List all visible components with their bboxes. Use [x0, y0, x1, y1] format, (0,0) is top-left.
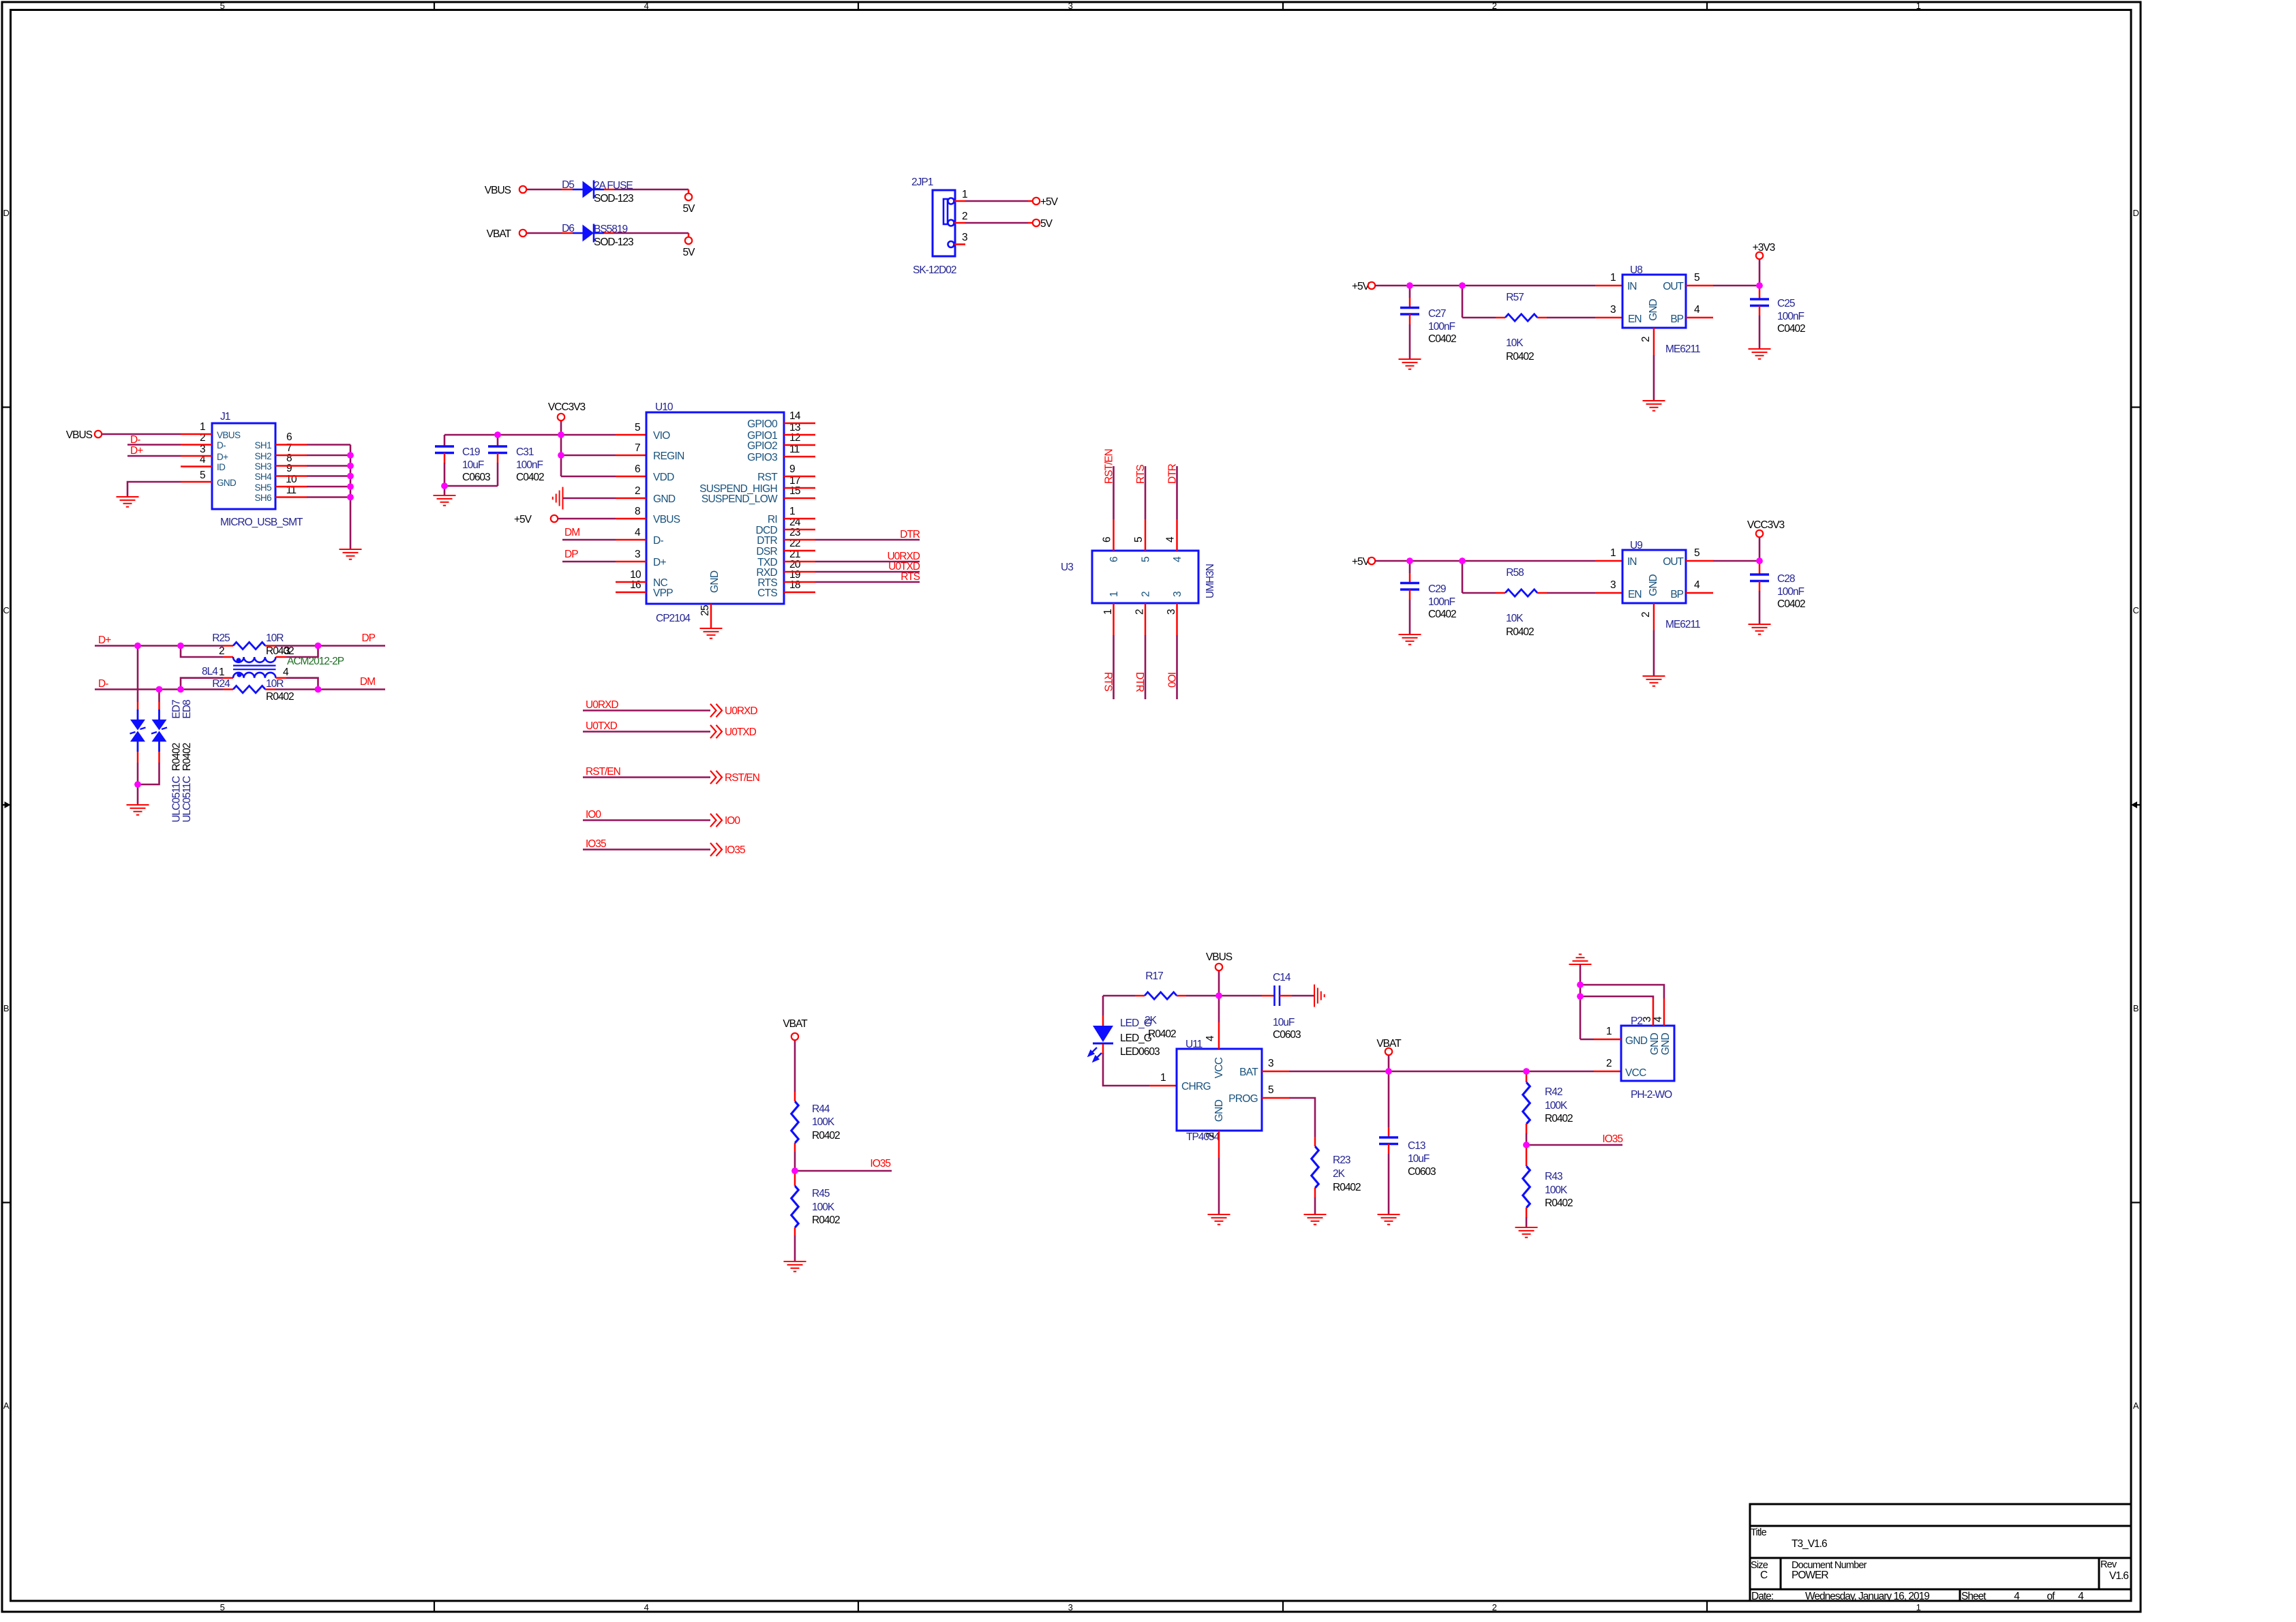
svg-text:1: 1: [1916, 1, 1921, 11]
svg-text:B: B: [3, 1003, 9, 1013]
svg-text:1: 1: [1160, 1072, 1166, 1084]
svg-text:PH-2-WO: PH-2-WO: [1631, 1089, 1672, 1101]
svg-text:1: 1: [1108, 592, 1120, 597]
svg-text:5: 5: [1694, 547, 1700, 559]
svg-text:5: 5: [200, 470, 205, 481]
svg-text:Date:: Date:: [1751, 1591, 1773, 1602]
svg-text:ULC0511C: ULC0511C: [181, 776, 193, 822]
svg-text:DM: DM: [564, 527, 579, 538]
svg-text:2K: 2K: [1145, 1015, 1158, 1026]
svg-text:100K: 100K: [812, 1116, 835, 1128]
svg-text:2: 2: [1134, 609, 1146, 615]
svg-text:6: 6: [1108, 557, 1120, 562]
svg-text:C13: C13: [1408, 1140, 1425, 1152]
svg-text:C29: C29: [1428, 583, 1446, 595]
svg-text:MICRO_USB_SMT: MICRO_USB_SMT: [220, 517, 303, 528]
svg-text:T3_V1.6: T3_V1.6: [1792, 1538, 1827, 1550]
svg-text:DSR: DSR: [756, 546, 777, 557]
svg-text:ULC0511C: ULC0511C: [171, 776, 183, 822]
svg-text:U0RXD: U0RXD: [725, 705, 757, 717]
svg-text:UMH3N: UMH3N: [1205, 564, 1216, 598]
svg-text:VBUS: VBUS: [653, 514, 680, 525]
svg-text:VBUS: VBUS: [485, 185, 511, 196]
svg-text:10uF: 10uF: [1408, 1153, 1430, 1165]
svg-text:DP: DP: [564, 549, 578, 560]
svg-text:2: 2: [1640, 337, 1652, 342]
svg-text:VDD: VDD: [653, 472, 674, 483]
svg-text:RTS: RTS: [1102, 672, 1114, 691]
svg-text:U10: U10: [655, 401, 674, 413]
svg-text:GPIO3: GPIO3: [747, 452, 777, 463]
svg-text:IN: IN: [1627, 281, 1637, 292]
svg-text:4: 4: [635, 527, 641, 538]
svg-text:U9: U9: [1630, 540, 1642, 551]
svg-text:5V: 5V: [683, 203, 696, 215]
svg-text:CTS: CTS: [757, 587, 777, 599]
svg-text:GND: GND: [1648, 299, 1659, 320]
svg-text:100K: 100K: [1545, 1100, 1568, 1112]
svg-text:D6: D6: [562, 223, 574, 234]
svg-text:3: 3: [1166, 609, 1177, 615]
svg-text:GPIO0: GPIO0: [747, 418, 778, 430]
svg-text:C: C: [3, 605, 10, 615]
svg-text:R0402: R0402: [1545, 1197, 1573, 1209]
svg-text:VBAT: VBAT: [783, 1018, 808, 1030]
svg-text:R0402: R0402: [1506, 626, 1534, 638]
svg-text:1: 1: [1610, 272, 1616, 284]
svg-text:2: 2: [219, 645, 224, 657]
svg-text:POWER: POWER: [1792, 1570, 1828, 1581]
svg-text:10K: 10K: [1506, 337, 1524, 349]
svg-text:C27: C27: [1428, 308, 1446, 320]
svg-text:Title: Title: [1751, 1527, 1767, 1538]
svg-text:2K: 2K: [1333, 1168, 1346, 1180]
svg-text:IO35: IO35: [870, 1158, 890, 1169]
svg-text:100nF: 100nF: [1777, 586, 1804, 598]
svg-text:IO0: IO0: [586, 809, 601, 821]
svg-text:1: 1: [1610, 547, 1616, 559]
svg-text:C0402: C0402: [1428, 333, 1456, 345]
svg-text:4: 4: [1652, 1016, 1664, 1022]
svg-text:Sheet: Sheet: [1961, 1591, 1987, 1602]
svg-text:100nF: 100nF: [1777, 311, 1804, 322]
svg-text:2: 2: [1606, 1058, 1612, 1069]
svg-text:10K: 10K: [1506, 613, 1524, 624]
svg-text:VPP: VPP: [653, 587, 673, 599]
svg-text:C14: C14: [1273, 972, 1291, 983]
svg-text:U0RXD: U0RXD: [586, 699, 618, 711]
svg-text:LED0603: LED0603: [1120, 1046, 1160, 1058]
svg-text:16: 16: [630, 579, 641, 591]
svg-text:R44: R44: [812, 1103, 830, 1115]
svg-text:4: 4: [644, 1602, 649, 1612]
svg-text:A: A: [2133, 1401, 2139, 1411]
svg-text:OUT: OUT: [1663, 281, 1684, 292]
svg-text:3: 3: [1610, 304, 1616, 316]
svg-text:3: 3: [1642, 1017, 1653, 1022]
svg-text:of: of: [2047, 1591, 2056, 1602]
svg-text:IO35: IO35: [586, 838, 606, 850]
svg-text:VCC: VCC: [1213, 1057, 1225, 1078]
svg-text:SH1: SH1: [255, 440, 272, 450]
svg-text:100nF: 100nF: [1428, 596, 1455, 608]
svg-text:10uF: 10uF: [462, 459, 484, 471]
svg-text:2: 2: [1205, 1133, 1216, 1138]
svg-text:25: 25: [699, 605, 711, 616]
svg-text:Wednesday, January 16, 2019: Wednesday, January 16, 2019: [1805, 1591, 1929, 1602]
svg-text:REGIN: REGIN: [653, 450, 684, 462]
svg-text:C: C: [1760, 1570, 1768, 1581]
svg-text:IO0: IO0: [1166, 672, 1177, 688]
svg-text:R57: R57: [1506, 292, 1524, 303]
svg-text:DM: DM: [360, 676, 375, 688]
svg-text:2: 2: [635, 485, 640, 497]
svg-text:5: 5: [1141, 557, 1152, 562]
svg-text:C0603: C0603: [462, 472, 490, 483]
svg-text:2: 2: [1492, 1602, 1497, 1612]
svg-text:100K: 100K: [1545, 1184, 1568, 1196]
svg-text:D+: D+: [98, 634, 111, 646]
svg-text:OUT: OUT: [1663, 556, 1684, 568]
svg-text:+5V: +5V: [1040, 196, 1059, 208]
svg-text:CP2104: CP2104: [656, 613, 691, 624]
svg-text:D-: D-: [98, 678, 108, 690]
svg-text:1: 1: [1102, 609, 1114, 615]
svg-text:ED8: ED8: [181, 700, 193, 719]
svg-text:D+: D+: [217, 452, 228, 462]
svg-text:V1.6: V1.6: [2109, 1570, 2128, 1582]
svg-text:SOD-123: SOD-123: [594, 236, 633, 248]
svg-text:9: 9: [286, 463, 292, 474]
svg-text:100nF: 100nF: [1428, 321, 1455, 333]
svg-text:D-: D-: [217, 440, 226, 450]
svg-text:+5V: +5V: [514, 514, 532, 525]
svg-text:R25: R25: [212, 632, 230, 644]
svg-text:SH4: SH4: [255, 472, 273, 482]
svg-text:D+: D+: [130, 445, 143, 457]
svg-text:14: 14: [789, 410, 801, 422]
svg-text:RI: RI: [768, 514, 777, 525]
svg-text:SH3: SH3: [255, 461, 272, 472]
svg-text:R0402: R0402: [812, 1214, 840, 1226]
svg-text:1: 1: [1916, 1602, 1921, 1612]
svg-text:C: C: [2133, 605, 2139, 615]
svg-text:A: A: [3, 1401, 10, 1411]
svg-text:+5V: +5V: [1352, 281, 1370, 292]
svg-text:RTS: RTS: [1135, 465, 1147, 484]
svg-text:EN: EN: [1628, 313, 1642, 325]
svg-text:1: 1: [789, 506, 795, 517]
svg-text:3: 3: [635, 549, 640, 560]
svg-text:R58: R58: [1506, 567, 1524, 579]
svg-text:EN: EN: [1628, 589, 1642, 600]
svg-text:R0402: R0402: [171, 743, 183, 771]
svg-text:C0402: C0402: [1777, 598, 1805, 610]
svg-text:1: 1: [962, 189, 967, 200]
svg-text:VBUS: VBUS: [66, 429, 93, 441]
svg-text:ME6211: ME6211: [1665, 619, 1700, 630]
svg-text:RTS: RTS: [901, 571, 920, 583]
svg-text:9: 9: [789, 463, 795, 475]
svg-text:GPIO2: GPIO2: [747, 440, 777, 452]
svg-text:C0603: C0603: [1408, 1166, 1436, 1178]
svg-text:10uF: 10uF: [1273, 1017, 1295, 1028]
svg-text:RST/EN: RST/EN: [586, 766, 620, 778]
svg-text:DTR: DTR: [1167, 463, 1179, 484]
svg-text:ED7: ED7: [171, 700, 183, 719]
svg-text:5: 5: [220, 1602, 225, 1612]
svg-text:VBUS: VBUS: [217, 430, 241, 440]
svg-text:J1: J1: [220, 411, 230, 423]
svg-text:R0402: R0402: [1506, 351, 1534, 363]
svg-text:U3: U3: [1061, 562, 1073, 573]
svg-text:VIO: VIO: [653, 430, 670, 442]
svg-text:2JP1: 2JP1: [911, 177, 933, 188]
svg-text:C31: C31: [516, 446, 534, 458]
svg-text:RST/EN: RST/EN: [1104, 449, 1115, 484]
svg-text:U0TXD: U0TXD: [725, 726, 757, 738]
svg-text:4: 4: [1694, 304, 1700, 316]
svg-text:SK-12D02: SK-12D02: [913, 264, 956, 276]
svg-text:GND: GND: [217, 478, 237, 488]
svg-text:4: 4: [1694, 579, 1700, 591]
svg-text:DTR: DTR: [757, 535, 777, 547]
svg-text:2: 2: [1492, 1, 1497, 11]
svg-text:GND: GND: [1660, 1032, 1672, 1055]
svg-text:SUSPEND_LOW: SUSPEND_LOW: [701, 493, 778, 505]
svg-text:R24: R24: [212, 678, 230, 690]
svg-text:ID: ID: [217, 462, 226, 472]
svg-text:4: 4: [283, 667, 289, 678]
svg-text:2: 2: [1640, 612, 1652, 617]
svg-text:23: 23: [789, 527, 800, 538]
svg-text:3: 3: [1610, 579, 1616, 591]
svg-text:BAT: BAT: [1239, 1067, 1258, 1078]
svg-text:5V: 5V: [683, 247, 696, 258]
svg-text:15: 15: [789, 485, 800, 497]
svg-text:+5V: +5V: [1352, 556, 1370, 568]
svg-text:R42: R42: [1545, 1086, 1562, 1098]
svg-text:R23: R23: [1333, 1154, 1350, 1166]
svg-text:R0402: R0402: [266, 691, 294, 703]
svg-text:VCC3V3: VCC3V3: [548, 401, 586, 413]
svg-text:R17: R17: [1145, 970, 1163, 982]
svg-text:6: 6: [1102, 537, 1113, 542]
svg-text:Rev: Rev: [2100, 1559, 2117, 1570]
svg-text:100K: 100K: [812, 1202, 835, 1213]
svg-text:P2: P2: [1631, 1015, 1642, 1027]
svg-text:C28: C28: [1777, 573, 1795, 585]
svg-text:18: 18: [789, 579, 800, 591]
svg-text:VBAT: VBAT: [487, 228, 512, 240]
svg-text:C0603: C0603: [1273, 1029, 1301, 1041]
svg-text:8: 8: [635, 506, 640, 517]
svg-text:4: 4: [1165, 536, 1177, 542]
svg-text:VCC3V3: VCC3V3: [1747, 519, 1785, 531]
svg-text:3: 3: [1068, 1602, 1073, 1612]
svg-text:BP: BP: [1670, 313, 1683, 325]
svg-text:B: B: [2133, 1003, 2139, 1013]
svg-text:SH5: SH5: [255, 483, 272, 493]
svg-text:DTR: DTR: [900, 529, 920, 540]
svg-text:R0402: R0402: [1148, 1028, 1176, 1040]
svg-text:BP: BP: [1670, 589, 1683, 600]
svg-text:GND: GND: [1649, 1032, 1661, 1055]
svg-text:3: 3: [1268, 1058, 1273, 1069]
svg-text:GND: GND: [653, 493, 676, 505]
svg-text:RST/EN: RST/EN: [725, 772, 759, 784]
svg-text:DTR: DTR: [1134, 672, 1145, 692]
svg-text:C25: C25: [1777, 298, 1795, 309]
svg-text:ME6211: ME6211: [1665, 343, 1700, 355]
svg-text:IO35: IO35: [1602, 1133, 1622, 1145]
svg-text:10R: 10R: [266, 632, 284, 644]
svg-text:RST: RST: [757, 472, 778, 483]
svg-text:GND: GND: [1625, 1035, 1648, 1047]
svg-text:100nF: 100nF: [516, 459, 543, 471]
svg-text:C0402: C0402: [1777, 323, 1805, 335]
svg-text:5: 5: [220, 1, 225, 11]
svg-text:VCC: VCC: [1625, 1067, 1646, 1079]
svg-text:2: 2: [1141, 592, 1152, 597]
svg-text:5: 5: [1133, 537, 1145, 542]
svg-text:D+: D+: [653, 557, 666, 568]
svg-text:C0402: C0402: [516, 472, 544, 483]
svg-text:6: 6: [635, 463, 640, 475]
svg-text:5: 5: [1694, 272, 1700, 284]
svg-text:PROG: PROG: [1228, 1093, 1258, 1105]
svg-text:5: 5: [1268, 1084, 1273, 1096]
svg-text:U0TXD: U0TXD: [586, 720, 618, 732]
svg-text:10R: 10R: [266, 678, 284, 690]
svg-text:5: 5: [635, 422, 640, 433]
svg-text:LED_G: LED_G: [1120, 1032, 1151, 1044]
svg-text:R0402: R0402: [812, 1130, 840, 1142]
svg-text:U11: U11: [1185, 1039, 1203, 1050]
svg-text:+3V3: +3V3: [1753, 242, 1775, 254]
svg-text:GND: GND: [1648, 574, 1659, 596]
svg-text:4: 4: [1172, 556, 1183, 562]
svg-text:IN: IN: [1627, 556, 1637, 568]
svg-text:R43: R43: [1545, 1171, 1562, 1182]
svg-text:1: 1: [1606, 1026, 1612, 1037]
svg-text:2: 2: [962, 211, 967, 222]
svg-text:4: 4: [644, 1, 649, 11]
svg-text:1: 1: [200, 421, 205, 433]
svg-text:D5: D5: [562, 179, 574, 191]
svg-text:U8: U8: [1630, 264, 1642, 276]
svg-text:SOD-123: SOD-123: [594, 193, 633, 204]
svg-text:D-: D-: [653, 535, 663, 547]
svg-text:4: 4: [1205, 1035, 1216, 1041]
svg-text:VBUS: VBUS: [1206, 951, 1233, 963]
svg-text:DP: DP: [361, 632, 375, 644]
svg-text:D: D: [2133, 208, 2139, 218]
svg-text:3: 3: [962, 232, 967, 243]
svg-text:GND: GND: [709, 570, 721, 593]
svg-text:C19: C19: [462, 446, 480, 458]
svg-text:R45: R45: [812, 1188, 830, 1199]
svg-text:3: 3: [1172, 592, 1183, 597]
svg-text:7: 7: [635, 442, 640, 454]
svg-text:ACM2012-2P: ACM2012-2P: [287, 656, 344, 667]
svg-text:SH6: SH6: [255, 493, 272, 503]
svg-text:R0402: R0402: [1545, 1113, 1573, 1124]
svg-text:12: 12: [789, 432, 800, 444]
svg-text:R0402: R0402: [1333, 1182, 1361, 1193]
svg-text:R0402: R0402: [181, 743, 193, 771]
svg-text:3: 3: [1068, 1, 1073, 11]
svg-text:GND: GND: [1213, 1099, 1225, 1122]
svg-text:IO35: IO35: [725, 844, 745, 856]
svg-text:C0402: C0402: [1428, 609, 1456, 620]
svg-text:SH2: SH2: [255, 451, 272, 461]
svg-text:D: D: [3, 208, 10, 218]
svg-text:1: 1: [219, 667, 224, 678]
svg-text:8L4: 8L4: [202, 666, 218, 677]
svg-text:5V: 5V: [1040, 218, 1053, 230]
svg-text:CHRG: CHRG: [1181, 1081, 1211, 1092]
svg-text:6: 6: [286, 431, 292, 443]
svg-text:IO0: IO0: [725, 815, 740, 827]
